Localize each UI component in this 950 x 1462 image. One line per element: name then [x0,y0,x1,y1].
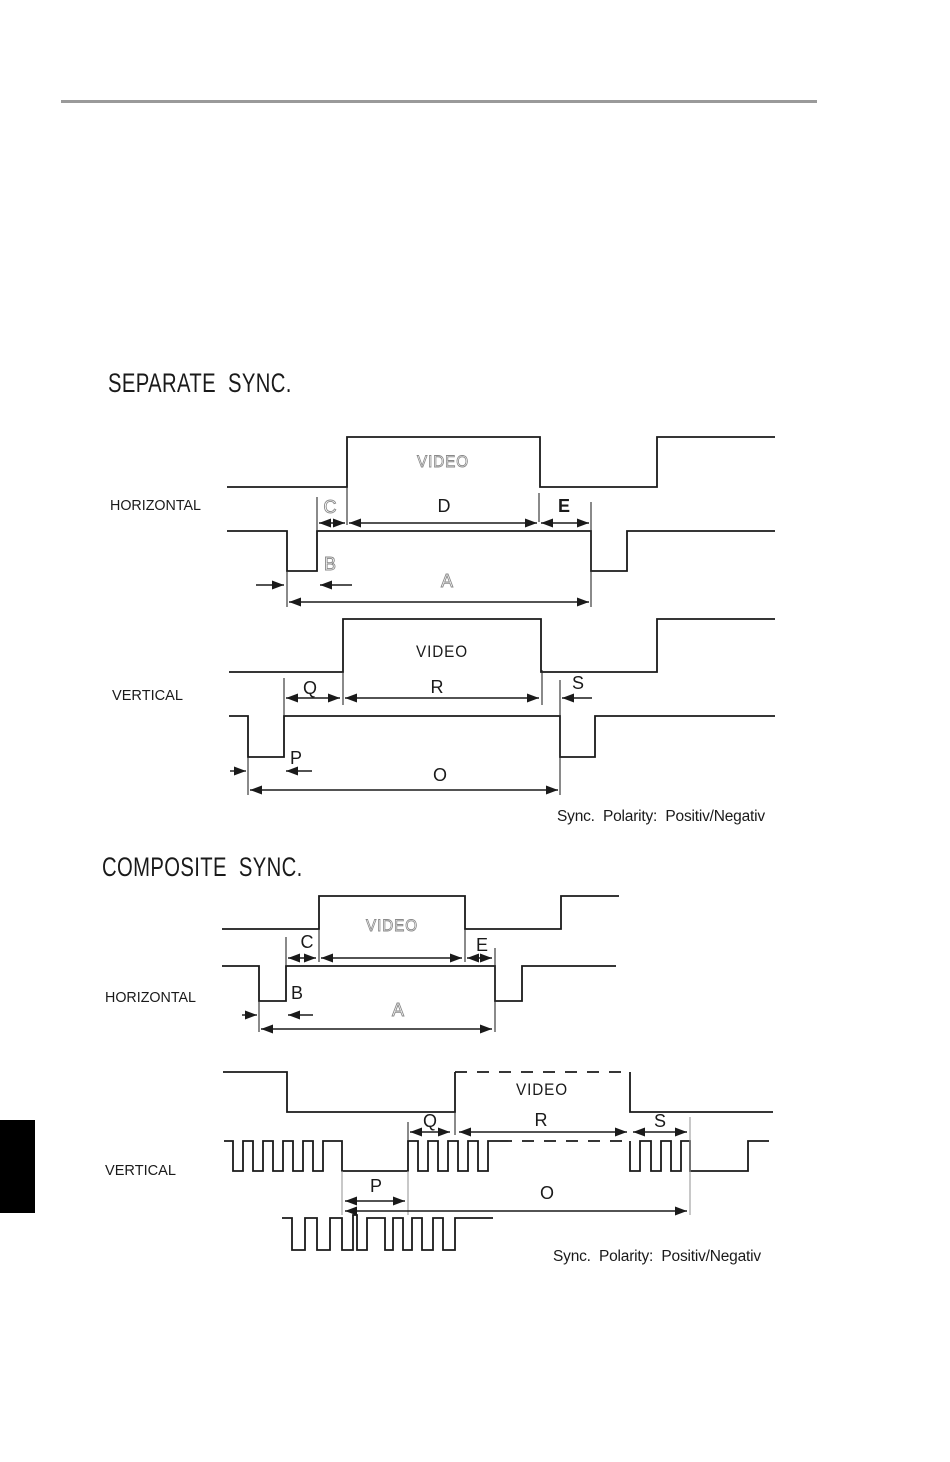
cv-label-p: P [370,1176,382,1196]
sv-video-waveform [229,619,775,672]
cv-label-o: O [540,1183,554,1203]
cv-label-r: R [535,1110,548,1130]
sv-label-o: O [433,765,447,785]
sv-axis-label: VERTICAL [112,687,183,704]
sh-label-c: C [324,497,337,517]
ch-axis-label: HORIZONTAL [105,989,196,1006]
sv-label-r: R [431,677,444,697]
sh-sync-waveform [227,531,775,571]
sh-axis-label: HORIZONTAL [110,497,201,514]
ch-label-e: E [476,935,488,955]
cv-video-waveform-right [630,1072,773,1112]
sh-video-waveform [227,437,775,487]
ch-label-b: B [291,983,303,1003]
sv-label-p: P [290,748,302,768]
ch-label-c: C [301,932,314,952]
cv-axis-label: VERTICAL [105,1162,176,1179]
sv-sync-waveform [229,716,775,757]
cv-sync-waveform-right [630,1141,769,1171]
sv-video-label: VIDEO [416,642,468,661]
cv-video-label: VIDEO [516,1080,568,1099]
composite-horizontal-diagram: VIDEO HORIZONTAL C E B A [105,896,619,1032]
ch-video-label: VIDEO [366,916,418,935]
cv-video-waveform-left [223,1072,455,1112]
separate-horizontal-diagram: VIDEO HORIZONTAL C D E B A [110,437,775,607]
sv-label-s: S [572,673,584,693]
timing-diagrams-canvas: VIDEO HORIZONTAL C D E B A VIDEO VERTICA… [0,0,950,1462]
cv-equalization-pulse-train [282,1215,493,1250]
ch-label-a: A [392,1000,404,1020]
cv-label-s: S [654,1111,666,1131]
sh-label-e: E [558,496,570,516]
sh-label-d: D [438,496,451,516]
cv-label-q: Q [423,1111,437,1131]
service-manual-page: SEPARATE SYNC. COMPOSITE SYNC. Sync. Pol… [0,0,950,1462]
composite-vertical-diagram: VIDEO VERTICAL Q R S P O [105,1072,773,1250]
sh-video-label: VIDEO [417,452,469,471]
separate-vertical-diagram: VIDEO VERTICAL Q R S P O [112,619,775,795]
sh-label-b: B [324,554,336,574]
cv-sync-waveform-left [224,1141,500,1171]
ch-video-waveform [222,896,619,929]
sv-label-q: Q [303,678,317,698]
sh-label-a: A [441,571,453,591]
ch-sync-waveform [222,966,616,1001]
